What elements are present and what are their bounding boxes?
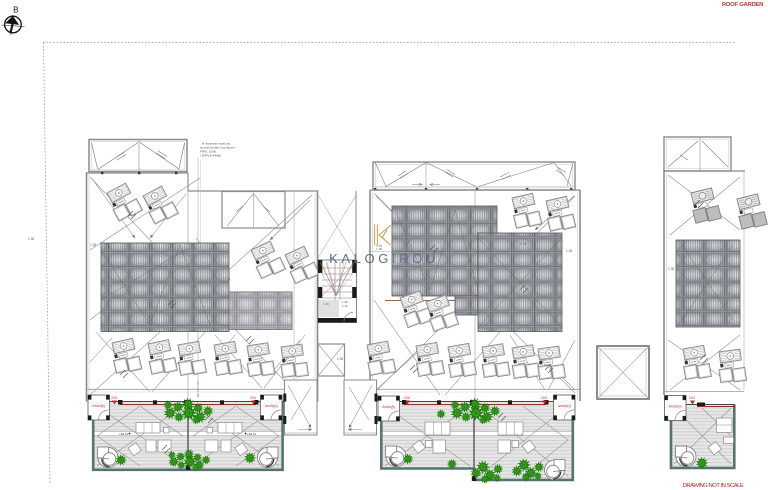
- svg-text:DRAWING NOT IN SCALE: DRAWING NOT IN SCALE: [683, 483, 744, 489]
- svg-text:B: B: [13, 5, 19, 14]
- svg-text:203: 203: [111, 396, 117, 400]
- svg-text:203: 203: [689, 396, 695, 400]
- svg-text:1.38: 1.38: [337, 357, 343, 361]
- svg-text:1.38: 1.38: [566, 249, 572, 253]
- svg-text:ROOF GARDEN: ROOF GARDEN: [722, 2, 763, 8]
- svg-text:1.15: 1.15: [342, 304, 348, 308]
- svg-text:1.15: 1.15: [323, 302, 329, 306]
- svg-text:( 50PV,0.44κΦ): ( 50PV,0.44κΦ): [200, 154, 221, 158]
- svg-text:1.38: 1.38: [28, 237, 34, 241]
- svg-text:+40.12: +40.12: [119, 432, 129, 436]
- svg-text:+40.12: +40.12: [247, 432, 257, 436]
- svg-text:206: 206: [404, 396, 410, 400]
- svg-text:205: 205: [541, 396, 547, 400]
- svg-text:KALOGIROU: KALOGIROU: [329, 251, 439, 266]
- svg-text:1.38: 1.38: [90, 243, 96, 247]
- svg-text:1.38: 1.38: [520, 242, 526, 246]
- svg-text:204: 204: [250, 396, 256, 400]
- svg-text:1.38: 1.38: [668, 267, 674, 271]
